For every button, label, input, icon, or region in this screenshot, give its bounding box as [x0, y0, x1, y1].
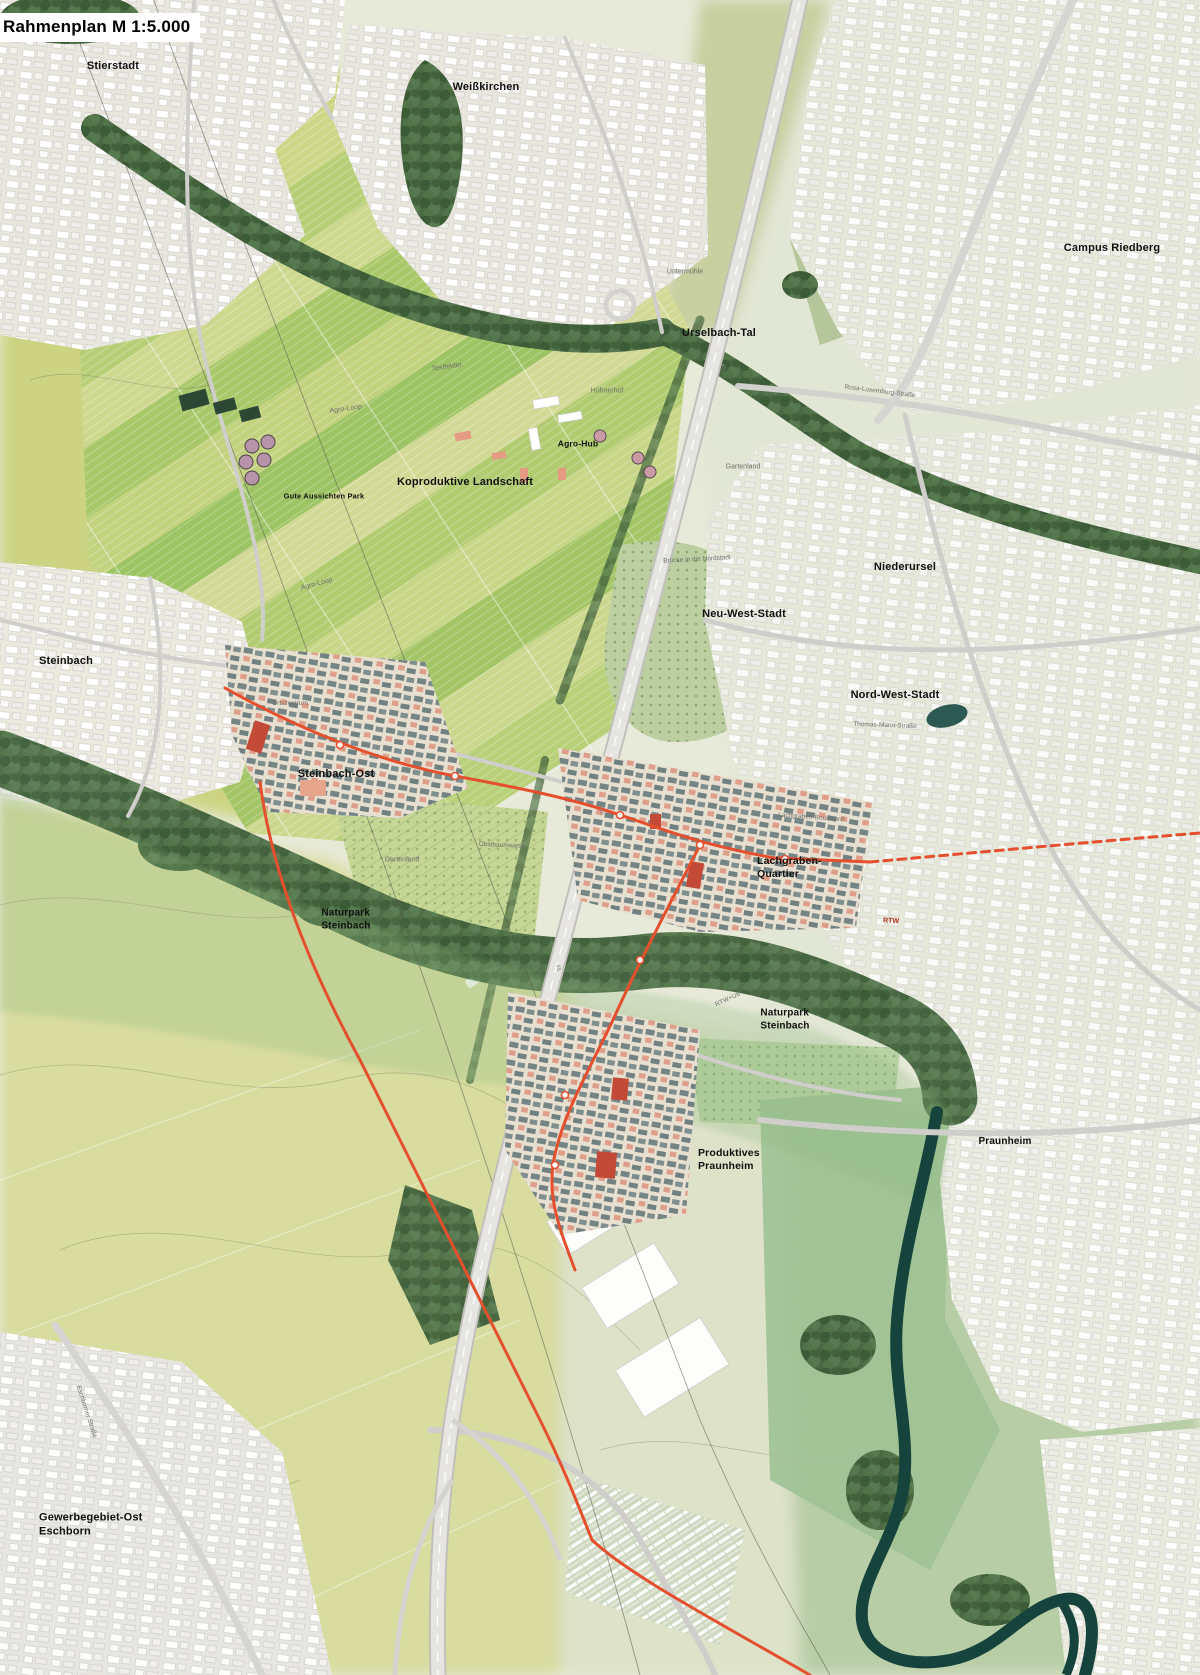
map-title: Rahmenplan M 1:5.000 — [0, 13, 200, 42]
masterplan-map: StierstadtWeißkirchenCampus RiedbergUrse… — [0, 0, 1200, 1675]
map-artwork — [0, 0, 1200, 1675]
